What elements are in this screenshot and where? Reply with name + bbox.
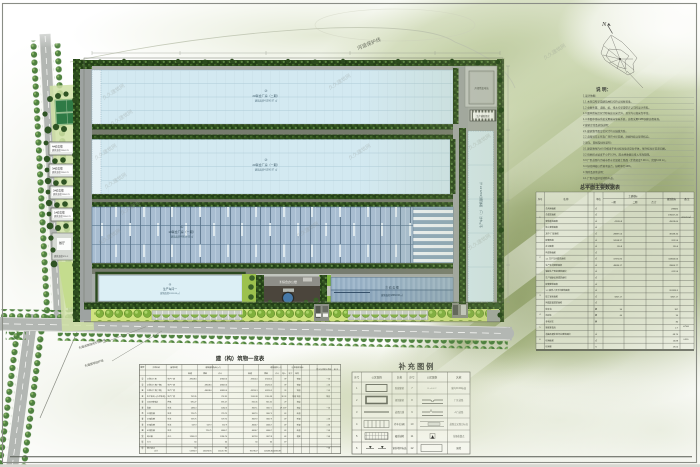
svg-text:5867.17: 5867.17	[614, 296, 622, 298]
svg-text:729.75: 729.75	[191, 413, 197, 415]
svg-text:3 竖向、管线及绿化说明：: 3 竖向、管线及绿化说明：	[583, 141, 613, 145]
svg-text:695.27: 695.27	[221, 402, 227, 404]
svg-text:1482.3: 1482.3	[191, 407, 197, 409]
svg-text:37372.85: 37372.85	[613, 259, 623, 261]
svg-text:729.75: 729.75	[191, 419, 197, 421]
svg-text:60: 60	[225, 447, 227, 449]
svg-text:4.1 厂区内设环形消防车道。: 4.1 厂区内设环形消防车道。	[583, 176, 615, 180]
svg-text:说 明：: 说 明：	[596, 86, 611, 93]
svg-text:48618.6: 48618.6	[220, 384, 227, 386]
svg-text:115096.95: 115096.95	[203, 450, 212, 452]
svg-text:③: ③	[141, 389, 143, 392]
svg-text:60: 60	[255, 442, 257, 444]
svg-text:1#联合厂房（一期）: 1#联合厂房（一期）	[168, 229, 195, 234]
svg-text:3.2 场地排水坡度不小于0.3%，雨水经收集后排入市政管: 3.2 场地排水坡度不小于0.3%，雨水经收集后排入市政管网。	[583, 152, 652, 156]
svg-text:657.9: 657.9	[222, 425, 227, 427]
svg-text:④: ④	[169, 283, 172, 287]
svg-text:60: 60	[225, 442, 227, 444]
svg-text:49618.6: 49618.6	[190, 379, 197, 381]
svg-text:2.1 建筑物平面定位尺寸均以轴线为准。: 2.1 建筑物平面定位尺寸均以轴线为准。	[583, 129, 628, 133]
svg-text:餐厅: 餐厅	[59, 240, 65, 245]
svg-text:60: 60	[194, 447, 196, 449]
svg-text:198227.45: 198227.45	[668, 215, 679, 217]
svg-text:建筑面积41590.97 ㎡: 建筑面积41590.97 ㎡	[255, 99, 278, 103]
svg-text:2#联合厂房（一期）: 2#联合厂房（一期）	[252, 162, 279, 167]
svg-text:68.74: 68.74	[673, 334, 679, 336]
svg-text:38138.34: 38138.34	[669, 234, 679, 236]
svg-text:4 消防及其他说明：: 4 消防及其他说明：	[583, 170, 606, 174]
svg-text:≥7500: ≥7500	[683, 325, 690, 328]
svg-text:729.75: 729.75	[221, 413, 227, 415]
svg-text:1.4 本图中坐标系统采用城市坐标系统，高程采用1985国: 1.4 本图中坐标系统采用城市坐标系统，高程采用1985国家高程基准。	[583, 117, 662, 121]
svg-text:⑦: ⑦	[141, 412, 143, 415]
svg-text:1.2 总图布置、道路、给、排水均采用甲方认可的设计资料。: 1.2 总图布置、道路、给、排水均采用甲方认可的设计资料。	[583, 105, 651, 109]
svg-text:202683.87: 202683.87	[272, 450, 281, 452]
svg-text:⑨综合办公楼: ⑨综合办公楼	[279, 279, 297, 284]
svg-text:19.00: 19.00	[673, 347, 679, 349]
svg-text:657.9: 657.9	[192, 425, 197, 427]
svg-text:729.75: 729.75	[206, 430, 212, 432]
svg-text:②: ②	[141, 383, 143, 386]
svg-text:201358.5: 201358.5	[669, 290, 679, 292]
svg-text:⑨: ⑨	[141, 424, 143, 427]
svg-text:4666.7: 4666.7	[252, 430, 258, 432]
svg-text:%: %	[595, 347, 597, 349]
svg-text:49618.6: 49618.6	[220, 379, 227, 381]
svg-text:4#宿舍楼: 4#宿舍楼	[52, 145, 63, 149]
svg-text:1284.74: 1284.74	[220, 436, 227, 438]
svg-text:657.9: 657.9	[207, 425, 212, 427]
svg-text:1.3 图中所标注尺寸除标高以米计外，其余均以毫米为单位。: 1.3 图中所标注尺寸除标高以米计外，其余均以毫米为单位。	[583, 111, 651, 115]
svg-text:1#宿舍楼: 1#宿舍楼	[54, 211, 65, 215]
svg-text:①: ①	[141, 378, 143, 381]
svg-text:60: 60	[194, 442, 196, 444]
svg-text:⑥: ⑥	[141, 406, 143, 409]
svg-text:生产车间一: 生产车间一	[163, 287, 177, 291]
svg-text:28887.56: 28887.56	[613, 234, 623, 236]
svg-text:815.56: 815.56	[672, 240, 679, 242]
svg-text:≥19%: ≥19%	[683, 338, 688, 341]
svg-text:48618.6: 48618.6	[205, 384, 212, 386]
svg-text:60: 60	[270, 442, 272, 444]
svg-text:151217.85: 151217.85	[218, 450, 227, 452]
svg-text:1 设计依据：: 1 设计依据：	[583, 94, 598, 98]
svg-text:⑩: ⑩	[141, 429, 143, 432]
svg-text:建筑面积49618.60 ㎡: 建筑面积49618.60 ㎡	[171, 235, 194, 239]
svg-text:2#联合厂房（二期）: 2#联合厂房（二期）	[252, 93, 279, 98]
svg-text:3672.8: 3672.8	[266, 436, 272, 438]
svg-text:建（构）筑物一览表: 建（构）筑物一览表	[215, 355, 265, 363]
svg-text:N: N	[601, 21, 607, 28]
svg-text:76578.07: 76578.07	[250, 450, 258, 452]
svg-text:2.2 道路转弯半径及广场尺寸详见图，放线时结合现场核实。: 2.2 道路转弯半径及广场尺寸详见图，放线时结合现场核实。	[583, 135, 651, 139]
svg-text:28606.77: 28606.77	[669, 265, 679, 267]
svg-text:729.75: 729.75	[221, 419, 227, 421]
svg-text:695.27: 695.27	[191, 402, 197, 404]
svg-text:1.1 本项目所采用建筑材料均符合国家标准。: 1.1 本项目所采用建筑材料均符合国家标准。	[583, 100, 633, 104]
svg-text:48086.17: 48086.17	[613, 265, 623, 267]
svg-text:3672.8: 3672.8	[252, 436, 258, 438]
svg-text:118666.66: 118666.66	[668, 259, 679, 261]
svg-text:建筑面积41590.97 ㎡: 建筑面积41590.97 ㎡	[255, 168, 278, 172]
svg-text:4666.7: 4666.7	[221, 430, 227, 432]
svg-text:2 建筑定位及放线说明：: 2 建筑定位及放线说明：	[583, 123, 611, 127]
svg-text:126085.8: 126085.8	[264, 450, 272, 452]
svg-text:51930.9: 51930.9	[190, 450, 197, 452]
svg-text:3.4 绿化种植以乔灌木结合，绿地率为19%。: 3.4 绿化种植以乔灌木结合，绿地率为19%。	[583, 164, 633, 168]
svg-text:16598.37: 16598.37	[613, 240, 623, 242]
svg-text:190.8: 190.8	[617, 246, 623, 248]
svg-text:1284.74: 1284.74	[190, 436, 197, 438]
svg-text:⑤: ⑤	[141, 401, 143, 404]
svg-text:1482.3: 1482.3	[221, 407, 227, 409]
svg-text:3.1 建筑物室内±0.00相当于绝对标高值详见各单体，室: 3.1 建筑物室内±0.00相当于绝对标高值详见各单体，室外标高详见竖向图。	[583, 147, 667, 151]
svg-text:16.88: 16.88	[673, 340, 679, 342]
svg-text:190.6: 190.6	[673, 246, 679, 248]
svg-text:3.3 厂区道路均为城市型水泥混凝土路面（主路宽度7.00: 3.3 厂区道路均为城市型水泥混凝土路面（主路宽度7.00 m，次路6.00 m…	[583, 158, 668, 162]
svg-text:298685: 298685	[671, 208, 679, 210]
svg-text:615.56: 615.56	[672, 271, 679, 273]
svg-text:⑧: ⑧	[141, 418, 143, 421]
svg-text:④: ④	[141, 395, 143, 398]
svg-text:49618.60: 49618.60	[669, 221, 679, 223]
svg-text:48618.6: 48618.6	[205, 390, 212, 392]
svg-text:792.35: 792.35	[191, 396, 197, 398]
svg-text:41590.8: 41590.8	[614, 221, 622, 223]
svg-text:总平面主要数据表: 总平面主要数据表	[580, 184, 621, 191]
svg-text:2#宿舍楼: 2#宿舍楼	[53, 189, 64, 193]
svg-text:3#宿舍楼: 3#宿舍楼	[52, 167, 63, 171]
svg-text:5867.17: 5867.17	[670, 296, 678, 298]
